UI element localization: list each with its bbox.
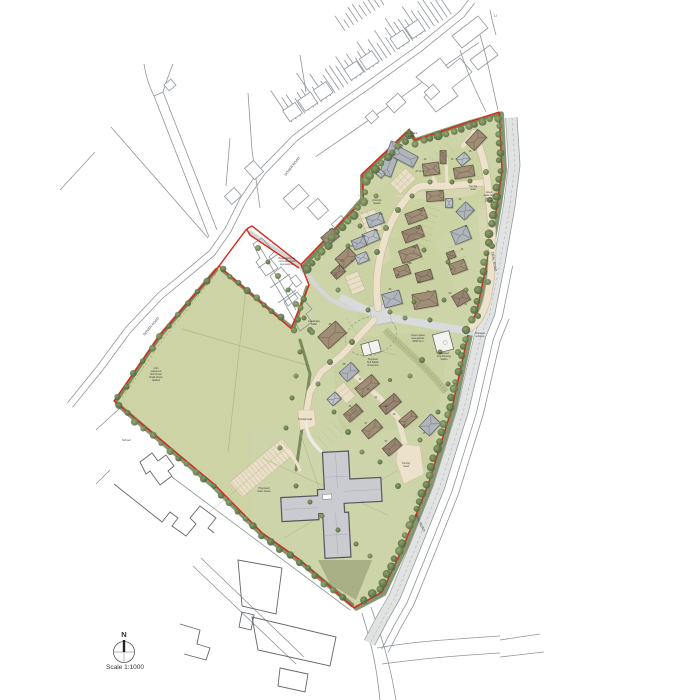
svg-text:05b: 05b [408, 262, 413, 265]
svg-text:17a: 17a [416, 227, 421, 230]
svg-text:Turning head: Turning head [298, 418, 313, 421]
svg-text:27 & 28: 27 & 28 [416, 169, 425, 173]
svg-text:Pedestrian/cycleconnection/tra: Pedestrian/cycleconnection/track& emerge… [279, 257, 297, 266]
svg-text:13a: 13a [418, 209, 423, 212]
svg-text:N: N [121, 630, 126, 639]
svg-text:U: U [494, 13, 497, 18]
svg-text:School: School [122, 438, 131, 442]
svg-text:Proposedentrance: Proposedentrance [475, 332, 486, 338]
svg-text:27b: 27b [379, 213, 384, 216]
svg-text:Scale 1:1000: Scale 1:1000 [106, 664, 144, 671]
svg-text:05a: 05a [412, 246, 417, 249]
svg-text:28a: 28a [374, 229, 379, 232]
svg-text:Green spacearea approx2300 sq: Green spacearea approx2300 sq m [411, 334, 425, 343]
svg-text:ProposedCare Home: ProposedCare Home [257, 486, 271, 493]
svg-text:ProposedSub Station& Gas Gov: ProposedSub Station& Gas Gov [367, 358, 380, 367]
